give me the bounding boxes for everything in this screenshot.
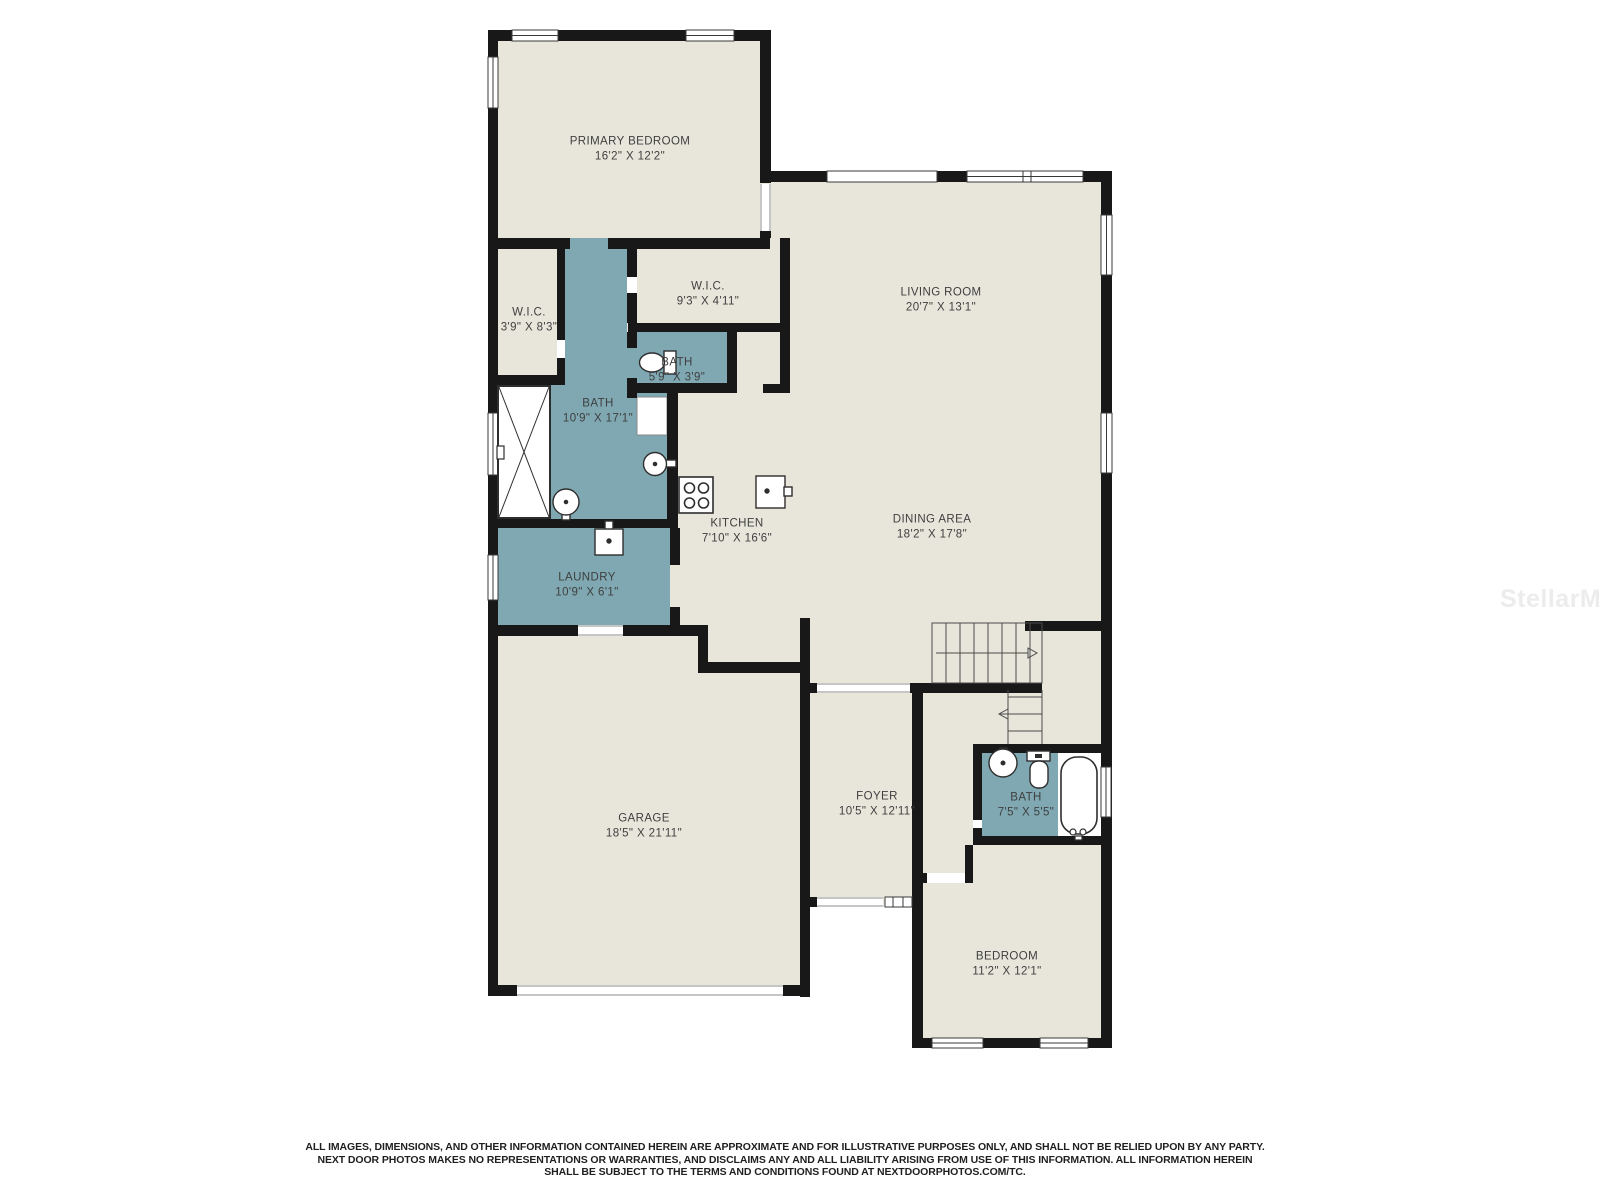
room-name: BATH [649, 356, 706, 371]
room-dims: 10'5" X 12'11" [839, 804, 915, 819]
floorplan-page: PRIMARY BEDROOM 16'2" X 12'2" W.I.C. 3'9… [0, 0, 1600, 1200]
room-dims: 10'9" X 17'1" [563, 411, 633, 426]
room-name: FOYER [839, 790, 915, 805]
room-label-laundry: LAUNDRY 10'9" X 6'1" [555, 571, 618, 600]
room-name: BATH [563, 397, 633, 412]
room-dims: 7'10" X 16'6" [702, 531, 772, 546]
room-label-bath-small: BATH 5'9" X 3'9" [649, 356, 706, 385]
room-dims: 3'9" X 8'3" [501, 320, 558, 335]
room-name: KITCHEN [702, 517, 772, 532]
room-label-bath-primary: BATH 10'9" X 17'1" [563, 397, 633, 426]
room-dims: 10'9" X 6'1" [555, 585, 618, 600]
room-label-foyer: FOYER 10'5" X 12'11" [839, 790, 915, 819]
room-dims: 16'2" X 12'2" [570, 149, 691, 164]
linen-closet [637, 397, 667, 435]
disclaimer-line: NEXT DOOR PHOTOS MAKES NO REPRESENTATION… [0, 1154, 1570, 1167]
disclaimer-text: ALL IMAGES, DIMENSIONS, AND OTHER INFORM… [0, 1141, 1570, 1179]
room-label-wic-2: W.I.C. 9'3" X 4'11" [677, 280, 740, 309]
room-name: LIVING ROOM [900, 286, 981, 301]
room-label-dining-area: DINING AREA 18'2" X 17'8" [893, 513, 972, 542]
room-name: GARAGE [606, 812, 682, 827]
room-label-bedroom: BEDROOM 11'2" X 12'1" [972, 950, 1041, 979]
room-dims: 5'9" X 3'9" [649, 370, 706, 385]
room-label-living-room: LIVING ROOM 20'7" X 13'1" [900, 286, 981, 315]
room-name: W.I.C. [677, 280, 740, 295]
disclaimer-line: SHALL BE SUBJECT TO THE TERMS AND CONDIT… [0, 1166, 1570, 1179]
room-name: PRIMARY BEDROOM [570, 135, 691, 150]
shower-icon [497, 386, 550, 518]
room-name: W.I.C. [501, 306, 558, 321]
stove-icon [679, 477, 713, 513]
sink-icon [989, 748, 1017, 777]
room-dims: 7'5" X 5'5" [998, 805, 1055, 820]
room-dims: 20'7" X 13'1" [900, 300, 981, 315]
toilet-icon [1027, 751, 1050, 788]
stellar-mls-watermark: StellarMLS [1500, 585, 1600, 614]
room-name: DINING AREA [893, 513, 972, 528]
room-name: LAUNDRY [555, 571, 618, 586]
room-label-bath-hall: BATH 7'5" X 5'5" [998, 791, 1055, 820]
room-label-garage: GARAGE 18'5" X 21'11" [606, 812, 682, 841]
room-label-wic-primary: W.I.C. 3'9" X 8'3" [501, 306, 558, 335]
room-dims: 18'5" X 21'11" [606, 826, 682, 841]
floorplan-drawing [0, 0, 1600, 1200]
room-name: BEDROOM [972, 950, 1041, 965]
room-dims: 11'2" X 12'1" [972, 964, 1041, 979]
room-dims: 18'2" X 17'8" [893, 527, 972, 542]
disclaimer-line: ALL IMAGES, DIMENSIONS, AND OTHER INFORM… [0, 1141, 1570, 1154]
bathtub-icon [1061, 757, 1097, 840]
room-label-kitchen: KITCHEN 7'10" X 16'6" [702, 517, 772, 546]
room-name: BATH [998, 791, 1055, 806]
room-label-primary-bedroom: PRIMARY BEDROOM 16'2" X 12'2" [570, 135, 691, 164]
room-dims: 9'3" X 4'11" [677, 294, 740, 309]
